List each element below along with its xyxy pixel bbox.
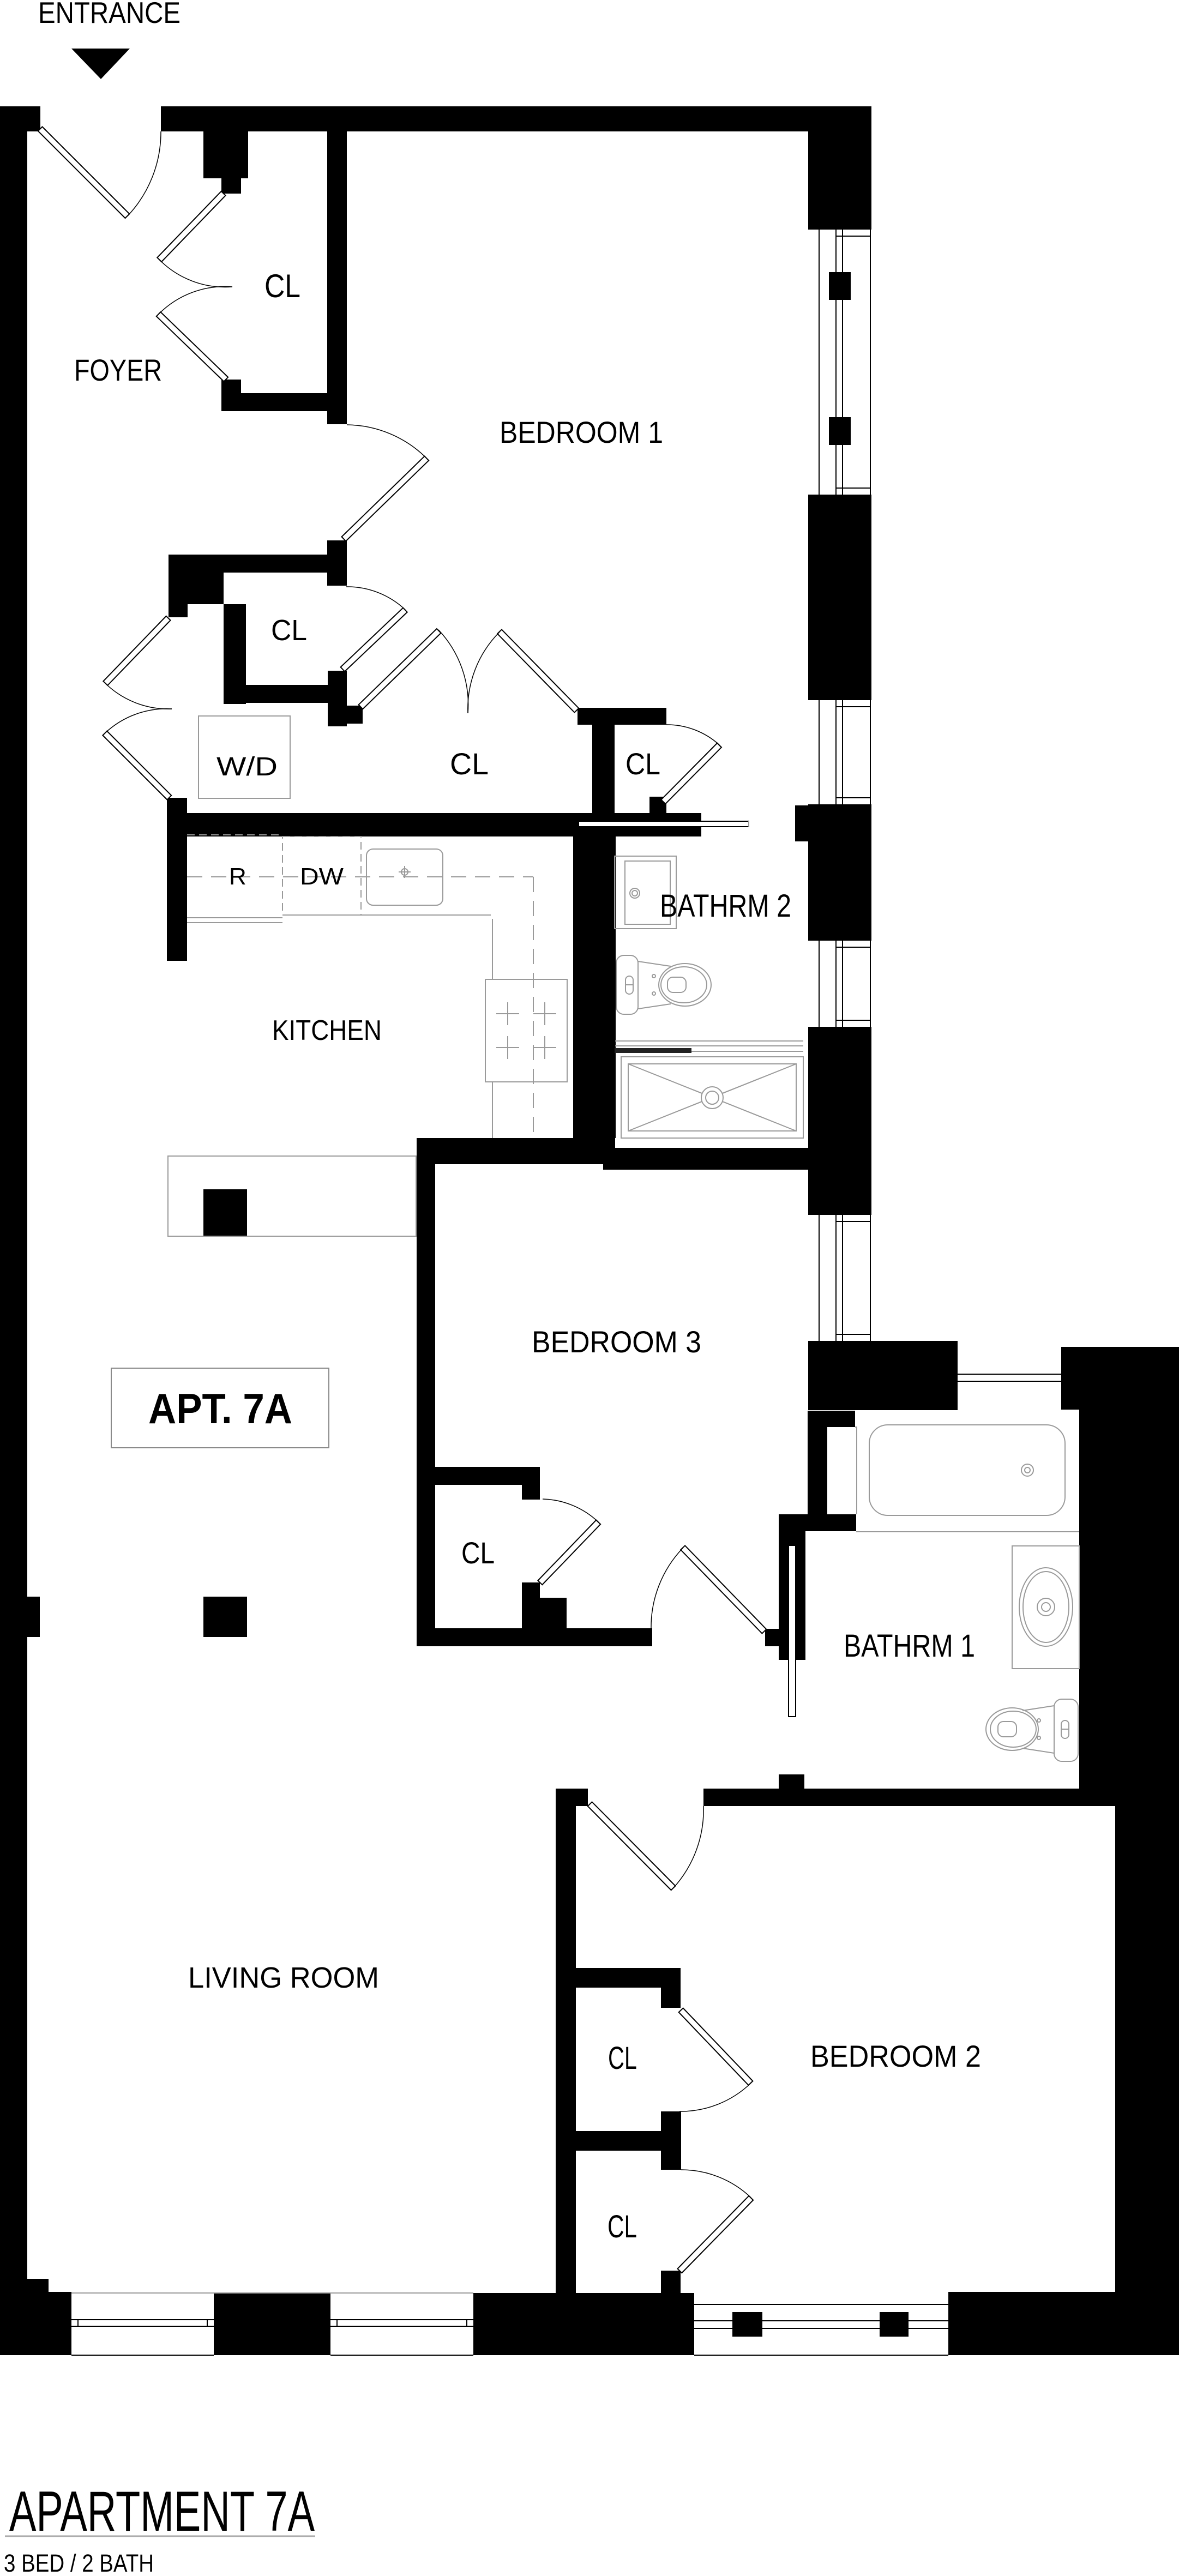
svg-text:CL: CL <box>608 2041 637 2076</box>
svg-text:FOYER: FOYER <box>74 353 162 387</box>
svg-text:R: R <box>229 863 246 890</box>
svg-text:BEDROOM 2: BEDROOM 2 <box>810 2039 981 2073</box>
svg-text:CL: CL <box>607 2209 637 2244</box>
svg-text:CL: CL <box>461 1536 495 1570</box>
svg-text:LIVING ROOM: LIVING ROOM <box>188 1961 379 1994</box>
svg-text:3 BED / 2 BATH: 3 BED / 2 BATH <box>4 2549 154 2576</box>
svg-text:APT. 7A: APT. 7A <box>148 1385 292 1433</box>
svg-text:CL: CL <box>625 747 660 781</box>
svg-text:CL: CL <box>450 747 489 781</box>
svg-text:BEDROOM 1: BEDROOM 1 <box>500 415 663 449</box>
svg-text:CL: CL <box>271 614 307 647</box>
svg-text:BATHRM 2: BATHRM 2 <box>660 888 791 924</box>
svg-text:BATHRM 1: BATHRM 1 <box>844 1628 975 1664</box>
svg-text:DW: DW <box>300 863 344 890</box>
svg-text:CL: CL <box>264 268 300 304</box>
svg-text:W/D: W/D <box>216 753 278 781</box>
svg-text:BEDROOM 3: BEDROOM 3 <box>532 1325 701 1359</box>
svg-text:APARTMENT 7A: APARTMENT 7A <box>9 2480 315 2543</box>
svg-text:ENTRANCE: ENTRANCE <box>38 0 181 29</box>
svg-text:KITCHEN: KITCHEN <box>272 1015 382 1046</box>
